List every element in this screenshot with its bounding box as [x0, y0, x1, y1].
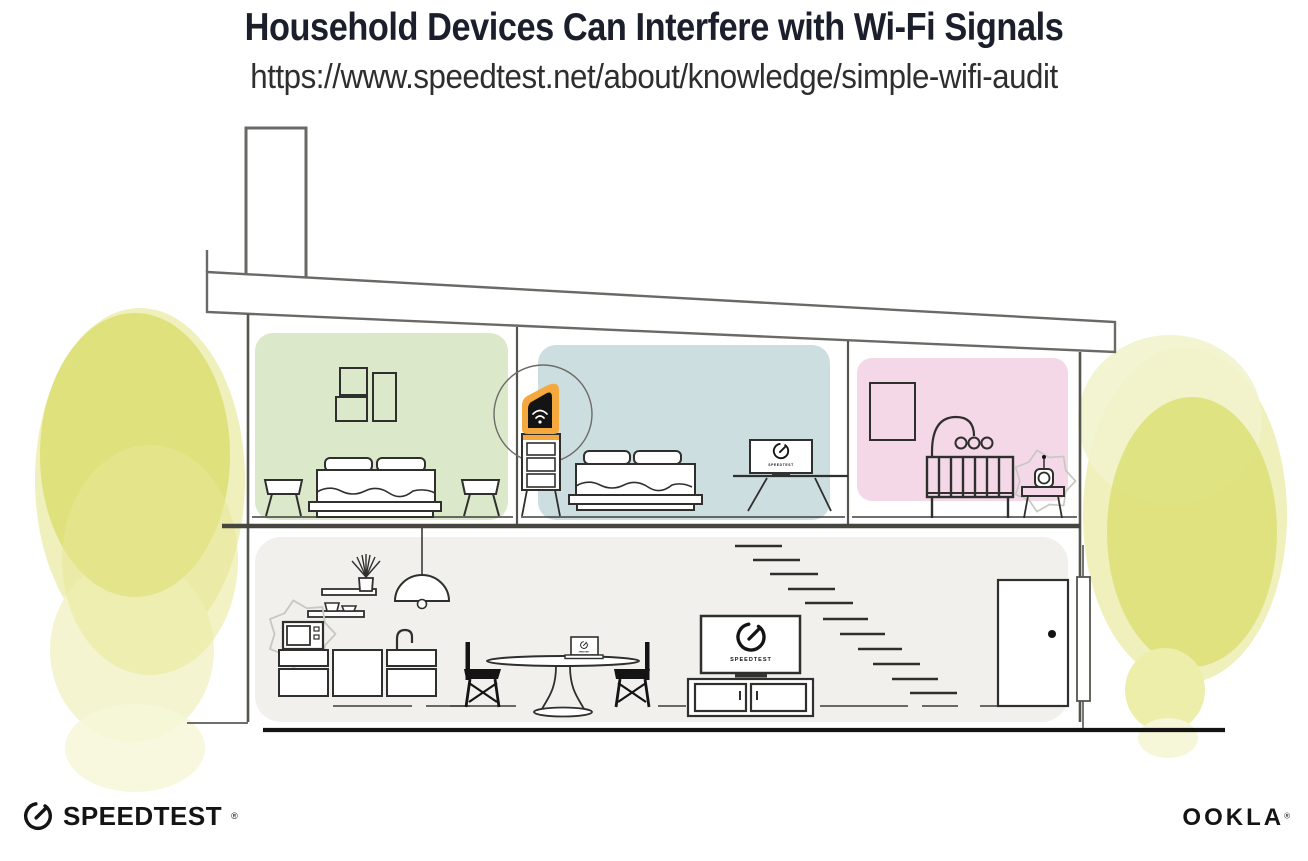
chimney — [246, 128, 306, 280]
laptop-icon: SPEEDTEST — [565, 637, 603, 659]
infographic-canvas: Household Devices Can Interfere with Wi-… — [0, 0, 1308, 861]
speedtest-registered-mark: ® — [231, 811, 238, 821]
livingroom-tv-icon: SPEEDTEST — [701, 616, 800, 678]
speedtest-wordmark: SPEEDTEST — [63, 801, 222, 832]
door-knob-icon — [1048, 630, 1056, 638]
microwave-icon — [283, 622, 323, 649]
nursery-side-table-icon — [1022, 487, 1064, 518]
speedtest-gauge-icon — [22, 800, 54, 832]
right-bush — [1078, 335, 1287, 758]
left-bush — [35, 308, 245, 792]
tv-console-icon — [688, 679, 813, 716]
ookla-logo: OOKLA® — [1182, 804, 1290, 832]
livingroom-tv-label: SPEEDTEST — [730, 657, 772, 663]
laptop-label: SPEEDTEST — [579, 652, 591, 654]
bedroom-tv-icon: SPEEDTEST — [750, 440, 812, 475]
ookla-wordmark: OOKLA — [1182, 804, 1284, 831]
door-icon — [998, 580, 1068, 706]
house-cross-section-illustration: SPEEDTEST — [0, 0, 1308, 861]
bedroom-tv-label: SPEEDTEST — [768, 463, 794, 467]
speedtest-logo: SPEEDTEST® — [22, 800, 238, 832]
kitchen-cabinets-icon — [279, 650, 436, 696]
ookla-registered-mark: ® — [1284, 812, 1290, 821]
